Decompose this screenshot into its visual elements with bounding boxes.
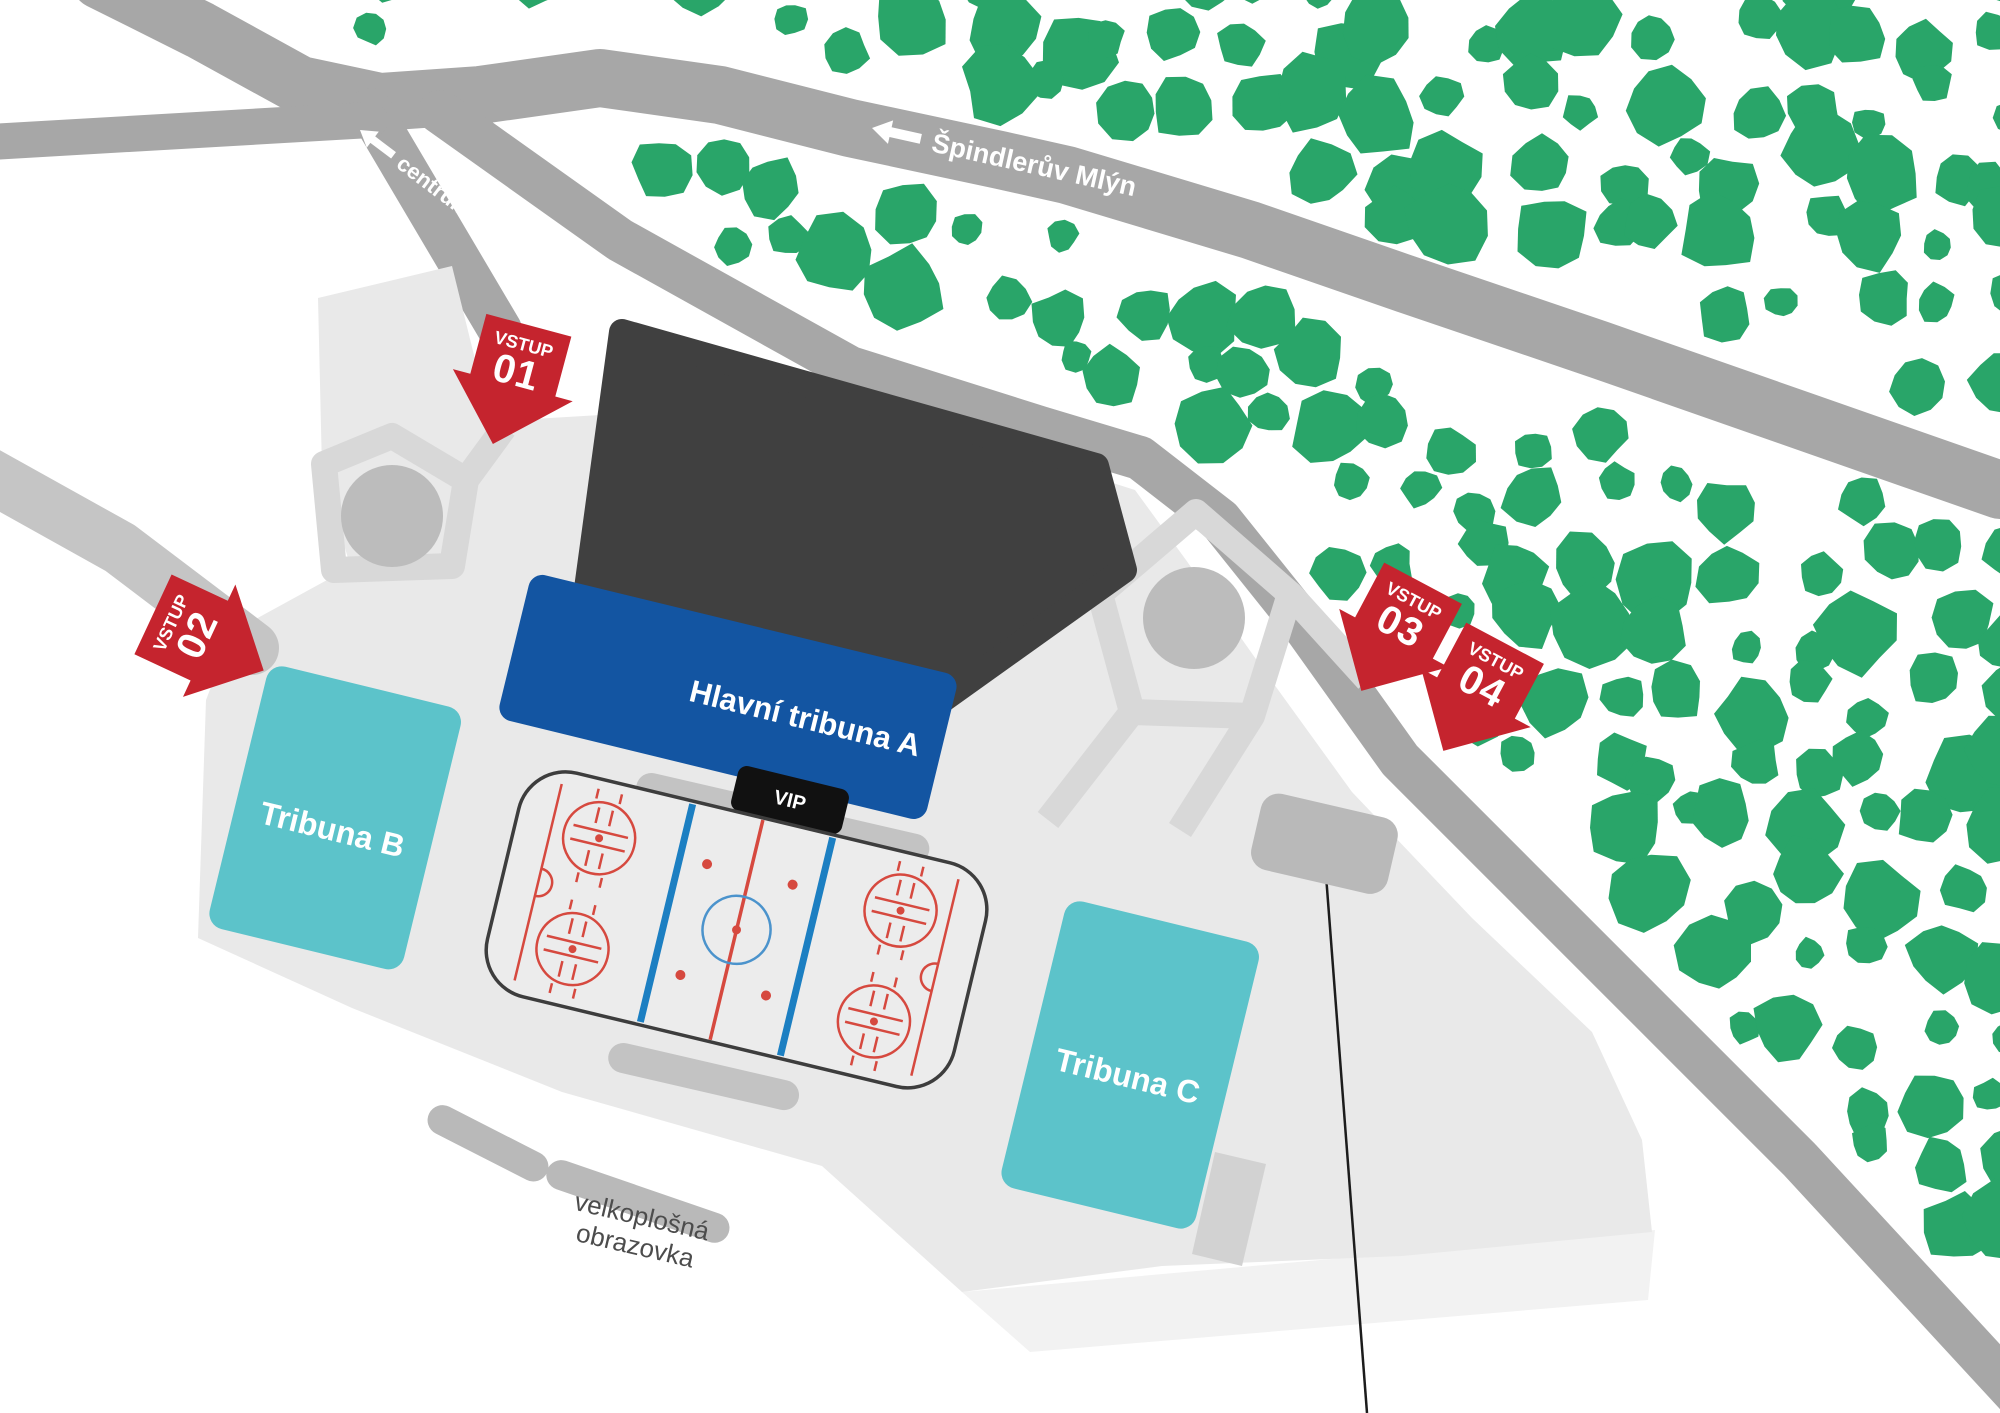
screen-bar-1 xyxy=(422,1100,553,1187)
road-left-branch xyxy=(0,120,370,142)
plaza-circle-east xyxy=(1143,567,1245,669)
screen-label-group: velkoplošná obrazovka xyxy=(565,1186,713,1275)
plaza-circle-west xyxy=(341,465,443,567)
venue-map: Špindlerův Mlýn centrum města Hlavní tri… xyxy=(0,0,2000,1413)
